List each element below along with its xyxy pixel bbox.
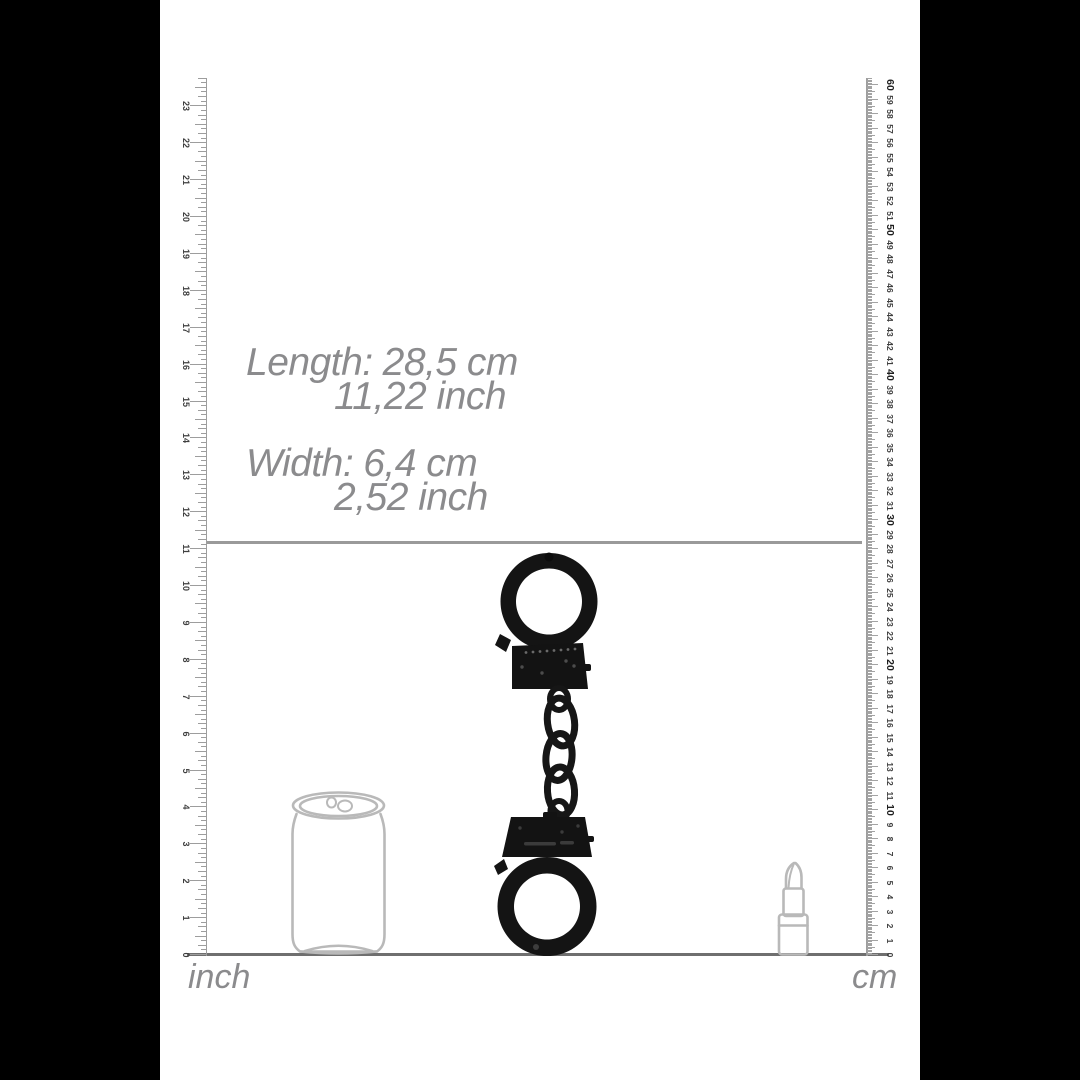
handcuffs-illustration — [494, 553, 598, 956]
illustration-layer — [0, 0, 1080, 1080]
soda-can-icon — [293, 793, 385, 954]
bottom-cuff-rivet — [533, 944, 539, 950]
product-dimension-diagram: Length:28,5 cm 11,22 inch Width:6,4 cm 2… — [0, 0, 1080, 1080]
handcuff-chain — [544, 688, 577, 821]
top-cuff-hinge-rivet — [545, 553, 554, 562]
lipstick-icon — [779, 863, 808, 955]
